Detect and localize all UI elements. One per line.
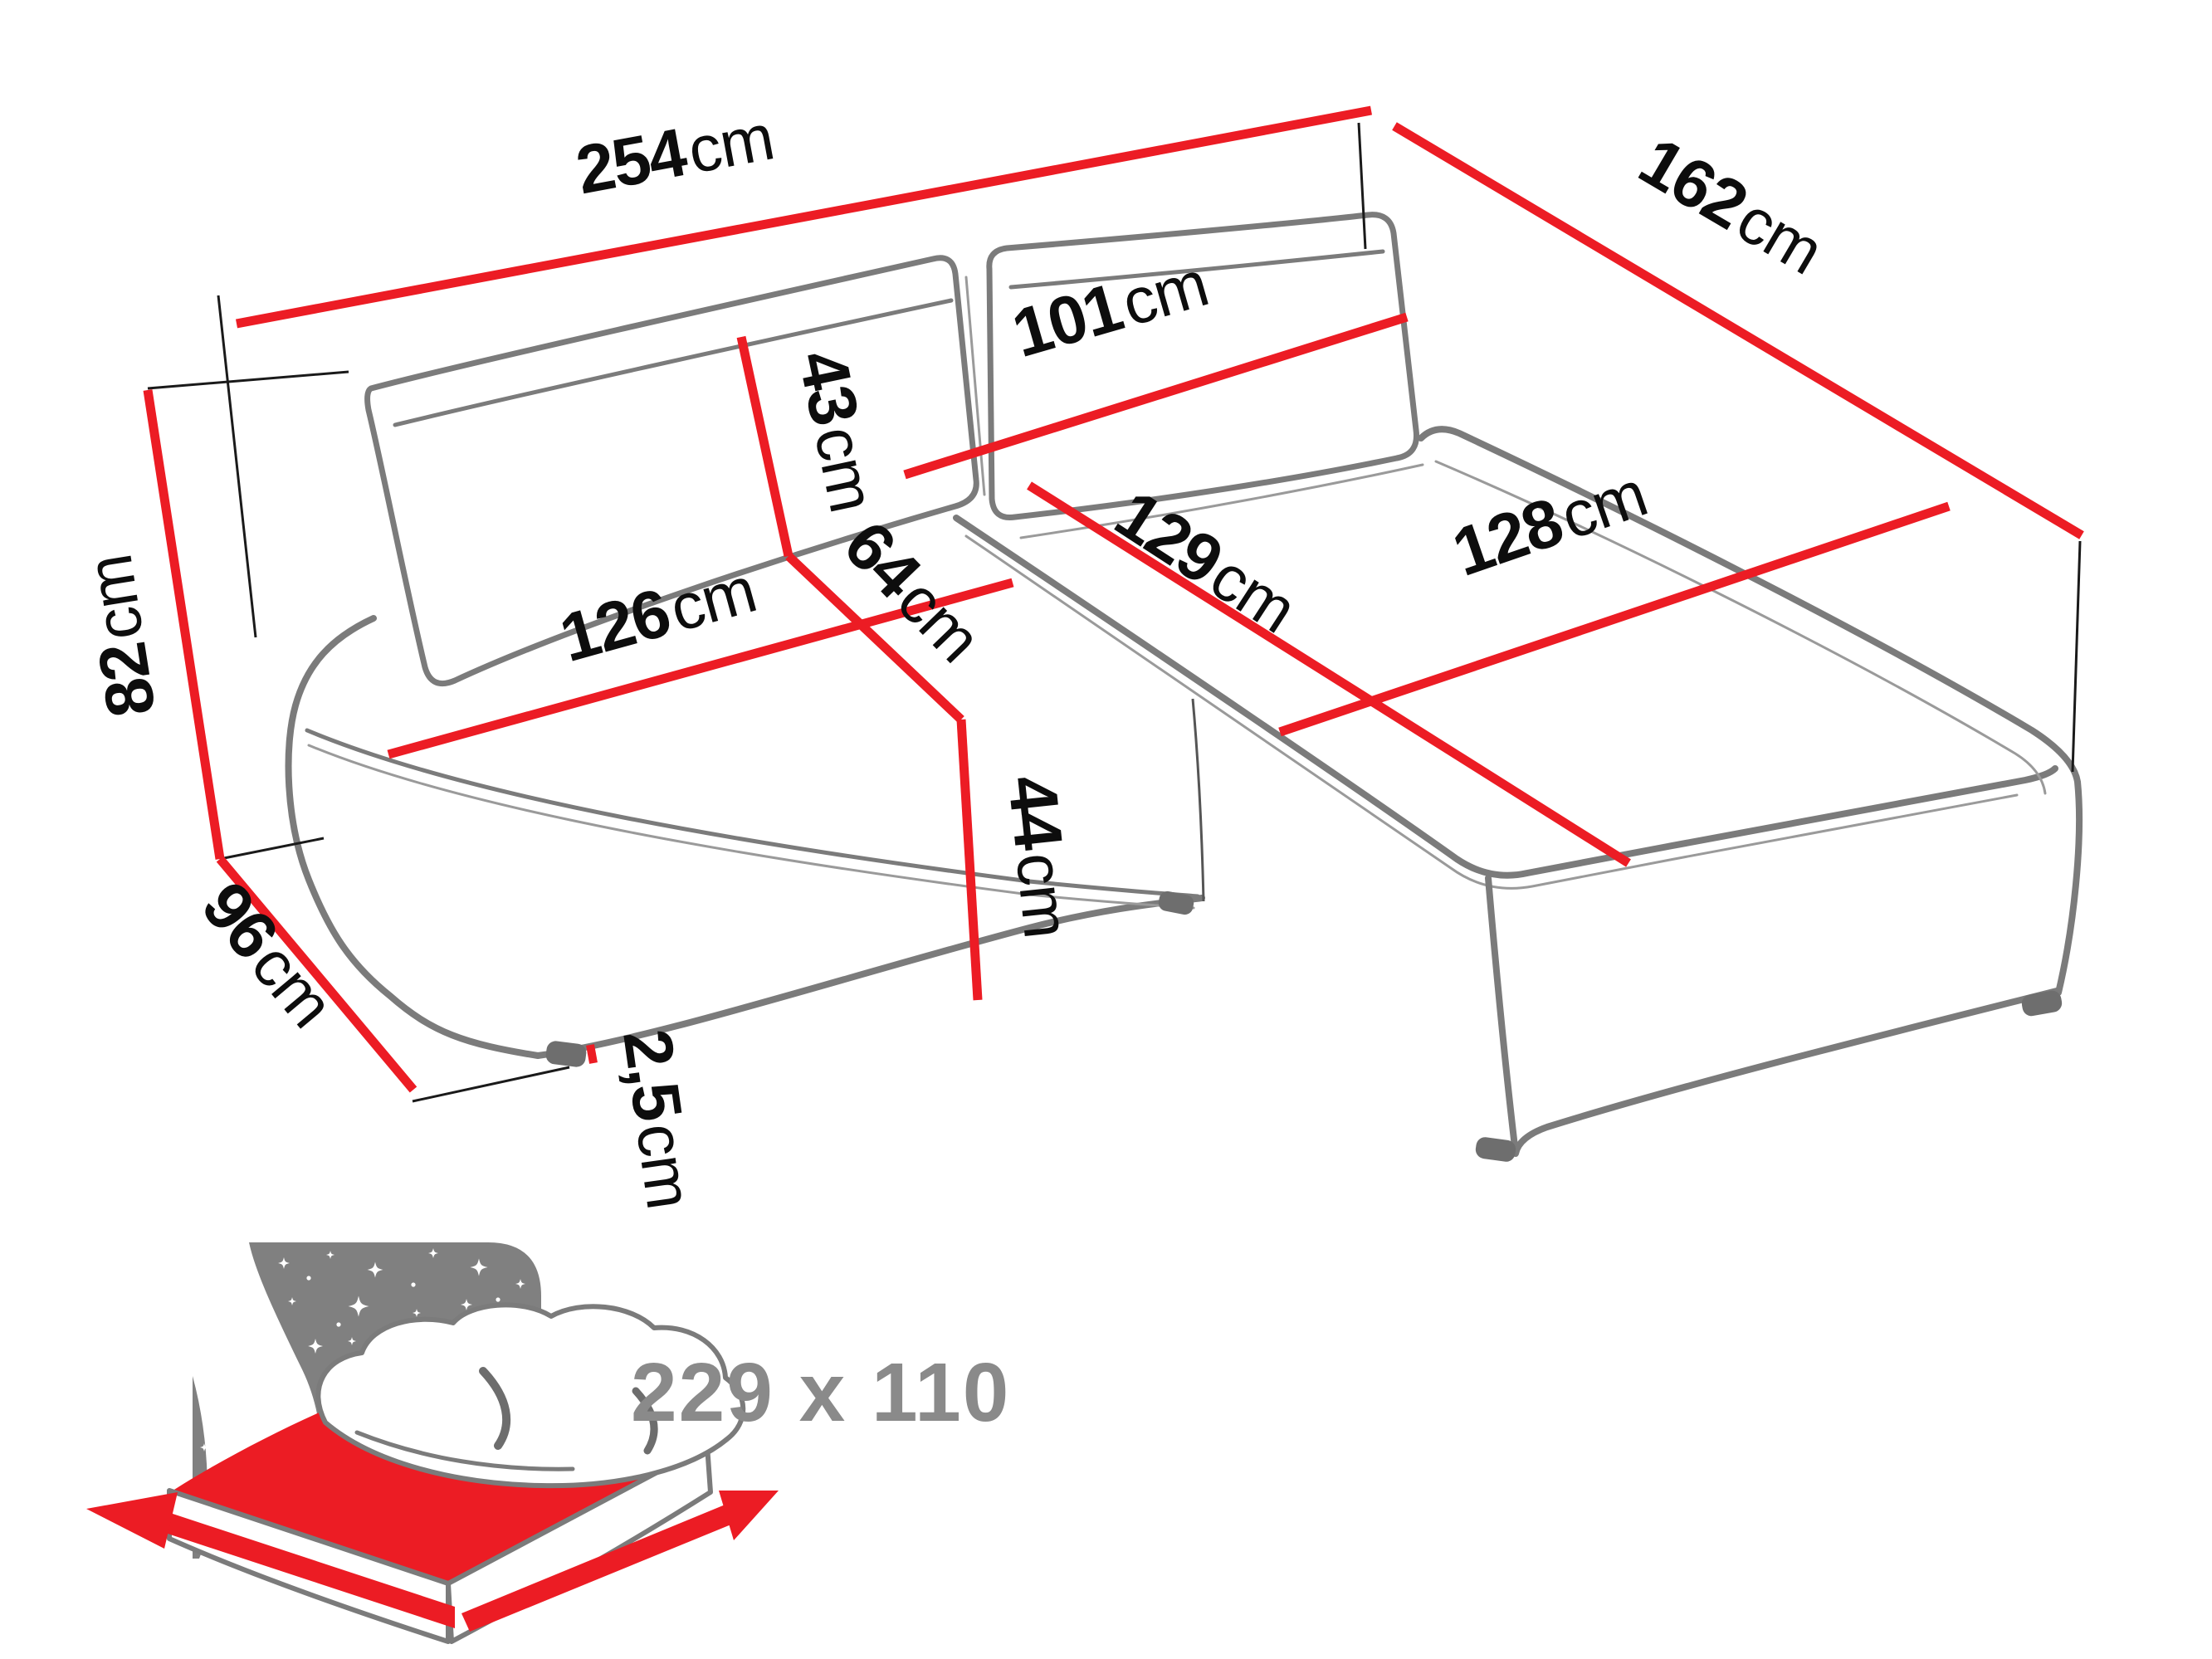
inner-corner-crease <box>1193 699 1204 901</box>
back-cushion-right <box>989 215 1417 518</box>
dimension-label-2-5: 2,5cm <box>608 1025 708 1213</box>
chaise-top-rim-inner <box>966 536 2017 888</box>
chaise-bottom-edge <box>1488 878 2057 1154</box>
sofa-foot-left <box>544 1040 587 1068</box>
dimension-label-96: 96cm <box>187 868 349 1041</box>
sleeping-area-size: 229 x 110 <box>631 1346 1010 1439</box>
extension-top-left-vertical <box>218 295 256 637</box>
dimension-line-128 <box>1280 506 1949 732</box>
sleeping-area-icon: 229 x 110 <box>86 1242 1010 1642</box>
dimension-line-82 <box>148 390 220 859</box>
sofa-foot-chaise-front <box>1474 1136 1516 1163</box>
dimension-label-254: 254cm <box>570 98 779 208</box>
dimension-label-162: 162cm <box>1627 123 1836 289</box>
dimension-diagram: 254cm 162cm 101cm 43cm 64cm 126cm 129cm … <box>0 0 2212 1659</box>
extension-96-bottom <box>413 1067 569 1101</box>
extension-162-bottom <box>2073 541 2080 772</box>
dimension-tick-2-5 <box>590 1045 593 1063</box>
arrow-right-head <box>719 1491 779 1540</box>
dimension-label-82: 82cm <box>71 550 170 722</box>
extension-82-top <box>148 372 349 388</box>
sofa-foot-right <box>2020 989 2063 1017</box>
dimension-line-44 <box>961 720 978 1000</box>
dimension-label-44: 44cm <box>994 772 1086 941</box>
arrow-left-head <box>86 1492 178 1549</box>
extension-96-top <box>220 838 324 859</box>
sofa-line-art <box>289 215 2080 1164</box>
dimension-label-129: 129cm <box>1102 476 1310 647</box>
